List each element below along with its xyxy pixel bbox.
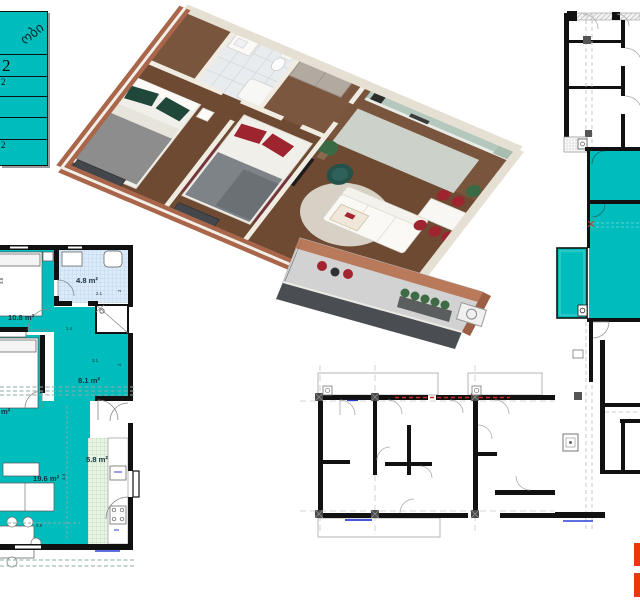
dim-label: 3.8 — [36, 523, 43, 528]
legend-row — [0, 97, 47, 118]
nightstand-symbol — [43, 252, 53, 261]
upper-door-arcs — [583, 14, 640, 113]
kitchen-sink-symbol — [110, 466, 126, 480]
area-label-living: 19.6 m² — [33, 474, 60, 483]
dim-label: 3.1 — [92, 358, 99, 363]
legend-header: ობი — [0, 12, 47, 55]
dim-label: 3.8 — [0, 277, 4, 284]
lobby-tiles — [564, 137, 587, 152]
logo-mark — [634, 573, 640, 597]
area-label-bathroom: 4.8 m² — [76, 276, 98, 285]
upper-walls — [569, 20, 625, 152]
building-plan-right — [555, 0, 640, 530]
floorplan-sheet: ობი 2 2 2 — [0, 0, 640, 600]
building-plan-bottom — [300, 365, 555, 545]
counter — [108, 438, 128, 544]
balcony-chair-red — [343, 269, 353, 279]
grid-dashed — [300, 365, 555, 535]
dining-table-symbol — [0, 526, 34, 558]
legend-row — [0, 118, 47, 140]
legend-row: 2 — [0, 77, 47, 97]
dim-label: 1.4 — [66, 326, 73, 331]
legend-row: 2 — [0, 140, 47, 165]
sink-symbol — [62, 252, 82, 266]
area-label-kitchen: 5.8 m² — [86, 455, 108, 464]
bp-walls — [318, 395, 555, 518]
toilet-symbol — [104, 251, 122, 267]
area-label-hall: 8.1 m² — [78, 376, 100, 385]
unit-floor-plan: 10.8 m² 4.8 m² 8.1 m² m² 19.6 m² 5.8 m² … — [0, 238, 140, 583]
area-label-bedroom2: m² — [1, 407, 11, 416]
dim-label: 4.4 — [61, 473, 66, 480]
logo-mark — [634, 543, 640, 566]
door-leaf — [133, 471, 139, 497]
dim-label: 2.1 — [96, 291, 103, 296]
sofa-symbol — [0, 483, 54, 511]
balcony-table — [331, 268, 340, 277]
legend-row: 2 — [0, 55, 47, 77]
legend-header-label: ობი — [17, 20, 47, 49]
wall-box-markers — [323, 386, 481, 395]
shower-symbol — [96, 305, 128, 333]
lower-lobby — [555, 322, 640, 521]
highlighted-unit — [557, 147, 640, 322]
legend-table: ობი 2 2 2 — [0, 11, 48, 166]
bp-door-arcs — [340, 400, 530, 513]
area-label-bedroom1: 10.8 m² — [8, 313, 35, 322]
balcony-chair-red — [317, 261, 327, 271]
